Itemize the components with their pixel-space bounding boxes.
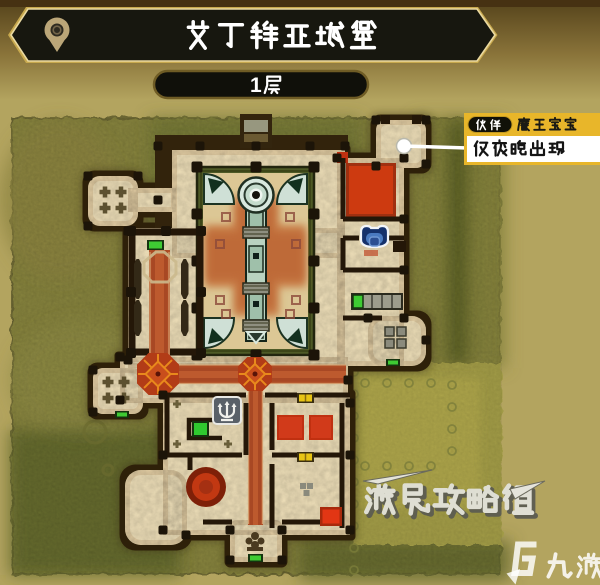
svg-text:1: 1 (250, 74, 262, 97)
